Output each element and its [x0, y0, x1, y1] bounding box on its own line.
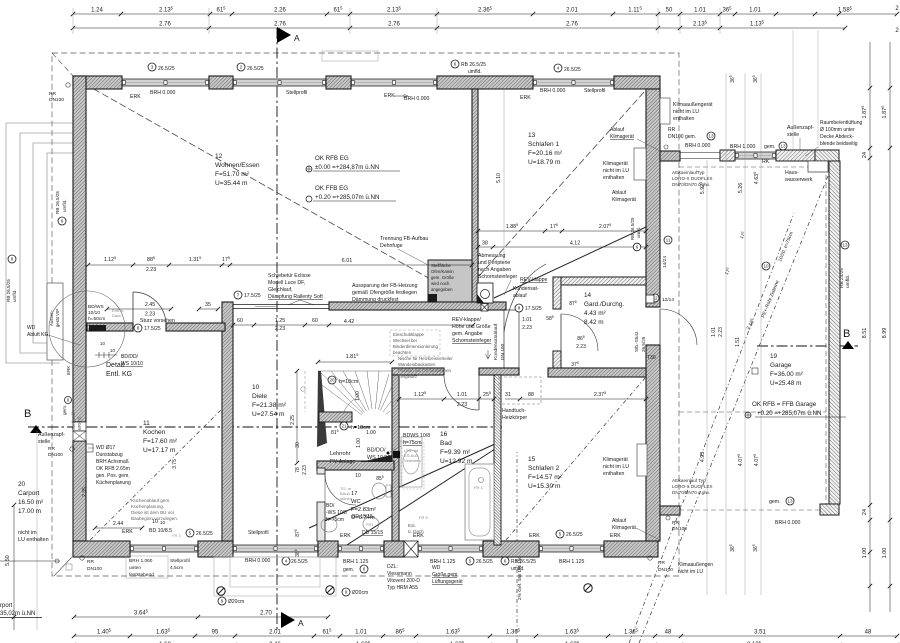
svg-text:Attikaeinlauf Typ: Attikaeinlauf Typ: [672, 478, 706, 483]
svg-text:17.5/25: 17.5/25: [525, 306, 542, 312]
svg-text:BD/DO/: BD/DO/: [367, 448, 386, 454]
svg-text:Stellprofil: Stellprofil: [170, 558, 190, 564]
svg-text:14/24: 14/24: [662, 256, 668, 268]
svg-text:unten: unten: [129, 565, 141, 571]
svg-text:ERK: ERK: [520, 95, 531, 101]
svg-text:gen. Pos. gem.: gen. Pos. gem.: [96, 473, 130, 479]
svg-text:6: 6: [454, 62, 457, 67]
svg-text:F=9.39 m²: F=9.39 m²: [440, 449, 471, 456]
svg-text:1.00: 1.00: [366, 430, 376, 436]
svg-text:nicht im LU: nicht im LU: [603, 464, 629, 470]
svg-text:Kondensat-: Kondensat-: [513, 286, 539, 292]
svg-text:Stellfläche: Stellfläche: [431, 263, 451, 268]
svg-text:2.45: 2.45: [145, 302, 155, 308]
svg-text:5: 5: [189, 531, 192, 536]
svg-text:6: 6: [67, 398, 70, 403]
svg-text:Ext.: Ext.: [408, 523, 416, 528]
svg-text:umlfd.: umlfd.: [511, 566, 525, 572]
svg-text:OK RFB = FFB Garage: OK RFB = FFB Garage: [752, 401, 817, 408]
svg-text:DN100: DN100: [658, 567, 673, 573]
svg-text:+0.20 =+285,07m ü.NN: +0.20 =+285,07m ü.NN: [315, 194, 380, 201]
svg-text:Detail: Detail: [106, 362, 124, 369]
svg-text:35: 35: [205, 302, 211, 308]
svg-text:2.76: 2.76: [388, 22, 400, 28]
svg-text:DN100: DN100: [48, 452, 63, 458]
svg-text:BRH 1.000: BRH 1.000: [730, 144, 755, 150]
svg-text:ERK: ERK: [66, 365, 71, 375]
svg-text:9: 9: [221, 599, 224, 604]
svg-text:2.01: 2.01: [566, 8, 578, 14]
svg-text:2.23: 2.23: [576, 344, 586, 350]
svg-text:U=17.17 m: U=17.17 m: [143, 447, 176, 454]
svg-text:4.93: 4.93: [700, 452, 706, 462]
svg-text:AttikaeinlaufTyp: AttikaeinlaufTyp: [672, 170, 705, 175]
svg-text:Klimaaußengerät: Klimaaußengerät: [673, 102, 713, 108]
svg-text:2.35: 2.35: [82, 487, 88, 497]
svg-text:BRH 0.000: BRH 0.000: [775, 520, 800, 526]
svg-text:RB 26.5/25: RB 26.5/25: [461, 62, 486, 68]
svg-text:9: 9: [345, 590, 348, 595]
svg-text:-WS 10/8: -WS 10/8: [326, 510, 347, 516]
svg-text:Ablauf: Ablauf: [610, 127, 625, 133]
svg-text:Klimagerät: Klimagerät: [612, 525, 637, 531]
svg-text:umfld.: umfld.: [845, 275, 851, 288]
svg-text:2.76: 2.76: [274, 22, 286, 28]
svg-text:Schornsteinfeger: Schornsteinfeger: [478, 274, 517, 280]
svg-text:2.23: 2.23: [146, 267, 156, 273]
svg-text:13: 13: [528, 132, 536, 139]
svg-text:Küchenablauf gem.: Küchenablauf gem.: [131, 498, 171, 503]
svg-text:Außenzapf-: Außenzapf-: [787, 125, 814, 131]
svg-text:Diese ist dem BU vor: Diese ist dem BU vor: [131, 510, 175, 515]
svg-text:DZL:: DZL:: [387, 564, 398, 570]
svg-text:8: 8: [137, 326, 140, 331]
svg-text:REV-klappe: REV-klappe: [520, 277, 548, 283]
svg-text:26.5/25: 26.5/25: [158, 66, 175, 72]
svg-text:BRH 0.000: BRH 0.000: [150, 90, 175, 96]
svg-text:2.23: 2.23: [522, 325, 532, 331]
svg-text:DN100: DN100: [87, 566, 102, 572]
svg-text:U=25.48 m: U=25.48 m: [770, 380, 801, 387]
svg-text:umfld.: umfld.: [62, 199, 67, 212]
svg-text:RR: RR: [658, 560, 665, 566]
svg-text:Lüftungsgerät: Lüftungsgerät: [432, 579, 463, 585]
svg-text:BRH 1.125: BRH 1.125: [430, 559, 455, 565]
svg-text:15: 15: [528, 456, 536, 463]
svg-text:Küchenplanung: Küchenplanung: [96, 480, 131, 486]
svg-text:B: B: [24, 408, 31, 420]
svg-text:gem. Angabe: gem. Angabe: [452, 331, 483, 337]
svg-text:stönen: stönen: [340, 496, 352, 501]
svg-text:blende beidseitig: blende beidseitig: [820, 141, 858, 147]
svg-text:BRH 1.060: BRH 1.060: [129, 558, 153, 564]
svg-text:1.51: 1.51: [735, 337, 741, 347]
svg-text:Haus-: Haus-: [785, 170, 799, 176]
svg-text:11: 11: [666, 238, 671, 243]
svg-text:WS 10/10: WS 10/10: [367, 455, 391, 461]
svg-text:1.00: 1.00: [862, 548, 868, 559]
svg-text:2.23: 2.23: [457, 402, 467, 408]
svg-text:12/14: 12/14: [662, 297, 674, 303]
svg-text:h=75cm: h=75cm: [326, 517, 344, 523]
svg-text:2.70: 2.70: [260, 611, 272, 617]
svg-text:BRH 0.: BRH 0.: [77, 416, 82, 430]
svg-text:5: 5: [469, 559, 472, 564]
svg-text:38: 38: [482, 241, 488, 247]
svg-text:6: 6: [636, 245, 639, 250]
svg-text:5: 5: [559, 532, 562, 537]
svg-text:gem.: gem.: [769, 499, 781, 505]
svg-text:17.00 m: 17.00 m: [18, 508, 41, 515]
svg-text:5.50: 5.50: [5, 555, 11, 566]
svg-text:BRH 0.000: BRH 0.000: [540, 88, 565, 94]
svg-text:RK: RK: [762, 159, 770, 165]
svg-text:RB 26.5/25: RB 26.5/25: [55, 191, 60, 214]
svg-text:ablauf: ablauf: [513, 293, 527, 299]
svg-text:DN70/DN70 o.glw.: DN70/DN70 o.glw.: [672, 490, 710, 495]
svg-text:Verblsten: Verblsten: [404, 458, 421, 463]
svg-text:Viessmann: Viessmann: [387, 571, 412, 577]
svg-text:13: 13: [780, 144, 786, 149]
svg-text:FR 5: FR 5: [419, 515, 428, 520]
svg-text:WC: WC: [351, 499, 361, 505]
svg-text:ERK: ERK: [384, 93, 395, 99]
svg-text:Stellprofil: Stellprofil: [286, 90, 307, 96]
svg-text:A: A: [294, 33, 300, 43]
svg-text:Gleichlauf,: Gleichlauf,: [268, 287, 293, 293]
svg-text:60: 60: [237, 318, 243, 324]
svg-text:OK FFB EG: OK FFB EG: [315, 185, 348, 192]
svg-text:95: 95: [212, 630, 219, 636]
svg-text:Raumbe/entlüftung: Raumbe/entlüftung: [820, 120, 862, 126]
svg-text:F=17.60 m²: F=17.60 m²: [143, 438, 178, 445]
svg-text:20: 20: [329, 378, 335, 383]
svg-text:h=18cm: h=18cm: [339, 379, 359, 385]
svg-text:BRH 1.125: BRH 1.125: [343, 559, 368, 565]
svg-text:Wohnen/Essen: Wohnen/Essen: [215, 162, 260, 169]
svg-text:ERK: ERK: [130, 94, 141, 100]
svg-text:Trennung FB-Aufbau: Trennung FB-Aufbau: [380, 236, 428, 242]
svg-text:nicht im LU: nicht im LU: [603, 168, 629, 174]
svg-text:Klimagerät: Klimagerät: [612, 197, 637, 203]
svg-text:Tiefgelarz: Tiefgelarz: [398, 374, 417, 379]
svg-text:26.5/25: 26.5/25: [476, 559, 493, 565]
svg-text:DN100: DN100: [49, 97, 64, 103]
svg-text:LORO-X DUOFLEX: LORO-X DUOFLEX: [672, 484, 713, 489]
svg-text:1.01: 1.01: [522, 317, 532, 323]
svg-text:T30: T30: [647, 355, 656, 361]
svg-text:WD: WD: [27, 325, 36, 331]
svg-text:Entl. KG: Entl. KG: [106, 371, 132, 378]
svg-text:enthalten: enthalten: [673, 116, 694, 122]
svg-text:WD: WD: [432, 565, 441, 571]
svg-text:4,5cm: 4,5cm: [170, 565, 183, 571]
svg-text:ERK: ERK: [413, 533, 424, 539]
svg-text:BD/WS: BD/WS: [88, 304, 104, 310]
svg-text:8: 8: [518, 306, 521, 311]
svg-text:Modell Luce DF,: Modell Luce DF,: [268, 280, 305, 286]
svg-text:Schlafen 1: Schlafen 1: [528, 141, 559, 148]
svg-text:angegeben: angegeben: [431, 287, 453, 292]
svg-text:F=20.16 m²: F=20.16 m²: [528, 150, 563, 157]
svg-text:±0.00 =+284,87m ü.NN: ±0.00 =+284,87m ü.NN: [315, 164, 379, 171]
svg-text:8.99: 8.99: [882, 328, 888, 339]
svg-text:U=15.30 m: U=15.30 m: [528, 483, 561, 490]
svg-text:10: 10: [160, 520, 166, 525]
svg-text:Stb.-Sturz: Stb.-Sturz: [634, 331, 639, 352]
svg-text:Schornsteinfeger: Schornsteinfeger: [452, 338, 491, 344]
svg-text:nicht im LU: nicht im LU: [673, 109, 699, 115]
svg-text:DD 15/15: DD 15/15: [362, 530, 383, 536]
svg-text:4: 4: [557, 66, 560, 71]
svg-text:DN70/DN70 o.glw.: DN70/DN70 o.glw.: [672, 182, 710, 187]
svg-text:5.26: 5.26: [738, 183, 744, 193]
svg-text:Decke Abdeck-: Decke Abdeck-: [820, 134, 854, 140]
svg-text:26.5/25: 26.5/25: [247, 66, 264, 72]
svg-text:13: 13: [708, 134, 714, 139]
svg-text:gem. Größe: gem. Größe: [431, 275, 455, 280]
svg-text:F=21.38 m²: F=21.38 m²: [252, 402, 287, 409]
svg-text:13: 13: [842, 243, 848, 248]
svg-text:88: 88: [528, 392, 534, 398]
svg-text:4.42: 4.42: [344, 319, 354, 325]
svg-text:beachten: beachten: [393, 350, 412, 355]
svg-text:8.51: 8.51: [862, 328, 868, 339]
svg-text:Stellprofil: Stellprofil: [248, 530, 269, 536]
svg-text:RB 24/25: RB 24/25: [839, 268, 845, 288]
svg-text:nicht im LU: nicht im LU: [678, 569, 703, 575]
svg-text:17.5/25: 17.5/25: [244, 293, 261, 299]
svg-text:F=36.00 m²: F=36.00 m²: [770, 371, 803, 378]
svg-text:enthalten: enthalten: [603, 175, 624, 181]
svg-text:Klimagerät: Klimagerät: [603, 161, 628, 167]
svg-text:10: 10: [355, 473, 361, 479]
svg-text:4.43 m²: 4.43 m²: [584, 310, 606, 317]
svg-text:Abmessung: Abmessung: [478, 253, 506, 259]
svg-text:26.5/25: 26.5/25: [196, 531, 213, 537]
svg-text:PV-Anlage: PV-Anlage: [330, 459, 355, 465]
svg-text:Lehrrohr: Lehrrohr: [330, 451, 351, 457]
svg-text:26.5/25: 26.5/25: [566, 532, 583, 538]
svg-text:16: 16: [440, 431, 448, 438]
svg-text:6: 6: [363, 567, 366, 572]
svg-text:1.01: 1.01: [694, 8, 706, 14]
svg-text:31: 31: [505, 392, 511, 398]
svg-text:Höhe und Größe: Höhe und Größe: [452, 324, 491, 330]
svg-text:Gard./Durchg.: Gard./Durchg.: [584, 301, 624, 308]
svg-text:BRH 1.125: BRH 1.125: [559, 559, 584, 565]
svg-text:RB 26.5/25: RB 26.5/25: [511, 559, 536, 565]
svg-text:19: 19: [770, 353, 778, 360]
svg-text:78: 78: [295, 467, 301, 473]
svg-text:RR: RR: [668, 127, 676, 133]
svg-text:LU enthalten: LU enthalten: [18, 537, 49, 543]
svg-text:F=51.70 m²: F=51.70 m²: [215, 171, 250, 178]
svg-text:Ø 100mm unter: Ø 100mm unter: [820, 127, 855, 133]
svg-text:RB 26.5/25: RB 26.5/25: [630, 217, 635, 240]
svg-text:17.5/25: 17.5/25: [144, 326, 161, 332]
svg-text:14: 14: [584, 292, 592, 299]
svg-text:Klimaaußengen: Klimaaußengen: [678, 562, 713, 568]
svg-text:RR: RR: [672, 520, 679, 526]
svg-text:26.5/25: 26.5/25: [564, 67, 581, 73]
svg-text:+0.20 =+285,07m ü.NN: +0.20 =+285,07m ü.NN: [757, 410, 822, 417]
svg-text:24: 24: [862, 509, 868, 515]
svg-text:gem.: gem.: [764, 144, 776, 150]
svg-text:2.44: 2.44: [113, 521, 123, 527]
svg-text:FR6: FR6: [400, 439, 408, 444]
svg-text:Sturz vorsehen: Sturz vorsehen: [140, 318, 175, 324]
svg-text:A: A: [298, 618, 304, 628]
svg-text:Stellprofil: Stellprofil: [71, 412, 76, 430]
svg-text:wird noch: wird noch: [431, 281, 450, 286]
svg-text:2.01: 2.01: [269, 630, 281, 636]
svg-text:10: 10: [763, 264, 769, 269]
svg-text:RB 26.5/25: RB 26.5/25: [6, 279, 11, 302]
svg-text:Schlafen 2: Schlafen 2: [528, 465, 559, 472]
svg-text:umfld.: umfld.: [468, 69, 482, 75]
svg-text:35,02m ü.NN: 35,02m ü.NN: [0, 611, 35, 617]
svg-text:Heizkörper: Heizkörper: [502, 415, 527, 421]
svg-text:RR: RR: [48, 446, 55, 452]
svg-text:Wandeinbaukasten: Wandeinbaukasten: [398, 362, 436, 367]
svg-text:4.12: 4.12: [570, 241, 580, 247]
svg-text:umftl.: umftl.: [636, 227, 641, 238]
svg-text:21: 21: [341, 424, 347, 429]
svg-text:Kochen: Kochen: [143, 429, 166, 436]
svg-text:2.76: 2.76: [159, 22, 171, 28]
svg-text:F=2.83m²: F=2.83m²: [351, 507, 376, 513]
svg-text:h=50cm: h=50cm: [88, 316, 105, 322]
svg-text:nach Angaben: nach Angaben: [478, 267, 511, 273]
svg-text:stelle: stelle: [787, 132, 799, 138]
svg-text:26.5/25: 26.5/25: [291, 559, 308, 565]
svg-text:FR1: FR1: [366, 522, 374, 527]
svg-text:rport: rport: [0, 603, 13, 609]
svg-text:BD 15/15: BD 15/15: [352, 514, 373, 520]
svg-text:BD/: BD/: [326, 503, 335, 509]
svg-text:6: 6: [61, 219, 64, 224]
svg-text:Dehnfuge: Dehnfuge: [380, 243, 403, 249]
svg-text:Dämpfung Rallenty Soft: Dämpfung Rallenty Soft: [268, 294, 323, 300]
svg-text:Ø20cm: Ø20cm: [352, 590, 368, 596]
svg-text:Wechsel bei: Wechsel bei: [393, 338, 417, 343]
svg-text:Küchenplanung.: Küchenplanung.: [131, 504, 164, 509]
svg-text:Abluft KG: Abluft KG: [27, 332, 49, 338]
svg-text:Bad: Bad: [440, 440, 452, 447]
svg-text:RR: RR: [49, 91, 56, 97]
svg-text:OK RFB EG: OK RFB EG: [315, 155, 349, 162]
svg-text:wasserwerk: wasserwerk: [785, 177, 813, 183]
svg-text:Nische für Heizkreisverteiler: Nische für Heizkreisverteiler: [398, 356, 453, 361]
svg-text:Klimagerät: Klimagerät: [603, 457, 628, 463]
svg-text:Klimagerät: Klimagerät: [610, 134, 635, 140]
svg-text:11: 11: [143, 420, 150, 427]
svg-text:3: 3: [151, 65, 154, 70]
svg-text:und Peripterie: und Peripterie: [478, 260, 510, 266]
svg-text:6: 6: [504, 559, 507, 564]
svg-text:gem.: gem.: [62, 405, 67, 415]
svg-text:Typ HRM A55: Typ HRM A55: [387, 585, 418, 591]
svg-text:2.25: 2.25: [290, 415, 296, 425]
svg-text:U=18.79 m: U=18.79 m: [528, 159, 561, 166]
svg-text:gerät VIP: gerät VIP: [55, 309, 60, 327]
svg-text:10: 10: [110, 348, 115, 353]
svg-text:RR: RR: [87, 559, 94, 565]
svg-text:WS 10/10: WS 10/10: [121, 361, 143, 367]
svg-text:BD 10/8.5: BD 10/8.5: [149, 528, 172, 534]
svg-text:6.01: 6.01: [342, 258, 353, 264]
svg-text:Stellprofil: Stellprofil: [584, 88, 605, 94]
svg-text:BRH 0.000: BRH 0.000: [404, 96, 429, 102]
svg-text:10/10: 10/10: [88, 310, 100, 316]
svg-text:feststehend: feststehend: [129, 572, 154, 578]
svg-text:umfld.: umfld.: [12, 289, 17, 302]
svg-text:BRH Achsmaß: BRH Achsmaß: [96, 459, 129, 465]
svg-text:Position vor Ort bestimmen: Position vor Ort bestimmen: [398, 368, 452, 373]
svg-text:U=27.54 m: U=27.54 m: [252, 411, 285, 418]
svg-text:nicht im: nicht im: [18, 530, 37, 536]
svg-text:BRH 0.000: BRH 0.000: [245, 558, 270, 564]
svg-text:LORO-X DUOFLEX: LORO-X DUOFLEX: [672, 176, 713, 181]
svg-text:1.24: 1.24: [91, 8, 103, 14]
svg-text:BRH 0.000: BRH 0.000: [685, 143, 710, 149]
svg-text:Dämmung druckfest: Dämmung druckfest: [352, 297, 399, 303]
svg-text:U=35.44 m: U=35.44 m: [215, 180, 248, 187]
svg-text:Vitovent 200-D: Vitovent 200-D: [387, 578, 420, 584]
svg-text:13: 13: [787, 499, 793, 504]
svg-text:Dach: Dach: [112, 313, 121, 318]
svg-text:60: 60: [312, 318, 318, 324]
svg-text:10: 10: [100, 341, 105, 346]
svg-text:20: 20: [18, 481, 26, 488]
svg-text:DN 100: DN 100: [500, 343, 506, 360]
svg-text:Schiebetür Eclisse: Schiebetür Eclisse: [268, 273, 311, 279]
svg-text:Ø20cm: Ø20cm: [228, 599, 244, 605]
svg-text:3.51: 3.51: [754, 630, 766, 636]
svg-text:3.75: 3.75: [172, 459, 178, 469]
svg-text:2.26: 2.26: [274, 8, 286, 14]
svg-text:ERK: ERK: [340, 533, 351, 539]
svg-text:F=14.57 m²: F=14.57 m²: [528, 474, 563, 481]
svg-text:2.23: 2.23: [275, 326, 285, 332]
svg-text:1.25: 1.25: [275, 318, 285, 324]
svg-text:1.00: 1.00: [355, 391, 361, 401]
svg-text:Ablauf: Ablauf: [612, 518, 627, 524]
svg-text:5.10: 5.10: [496, 173, 502, 183]
svg-text:OK RFB 2.65m: OK RFB 2.65m: [96, 466, 130, 472]
svg-text:10: 10: [252, 384, 260, 391]
svg-text:Ablauf: Ablauf: [612, 190, 627, 196]
svg-text:ERK: ERK: [610, 533, 621, 539]
svg-text:Außenzapf-: Außenzapf-: [38, 432, 65, 438]
svg-text:2: 2: [240, 65, 243, 70]
svg-text:Baubeginn vorzulegen.: Baubeginn vorzulegen.: [131, 516, 178, 521]
svg-text:ERK: ERK: [529, 533, 540, 539]
svg-text:7: 7: [237, 293, 240, 298]
svg-text:2.76: 2.76: [566, 22, 578, 28]
svg-text:U=12.92 m: U=12.92 m: [440, 458, 473, 465]
svg-text:Garage: Garage: [770, 362, 792, 369]
svg-text:1.01: 1.01: [457, 392, 467, 398]
svg-text:gem.: gem.: [343, 567, 354, 573]
svg-text:ERK: ERK: [122, 529, 133, 535]
svg-text:12: 12: [215, 153, 223, 160]
svg-text:DN100 gem.: DN100 gem.: [668, 134, 696, 140]
svg-text:24: 24: [862, 152, 868, 158]
svg-text:26.5/25: 26.5/25: [641, 336, 646, 352]
svg-text:Handtuch-: Handtuch-: [502, 408, 526, 414]
